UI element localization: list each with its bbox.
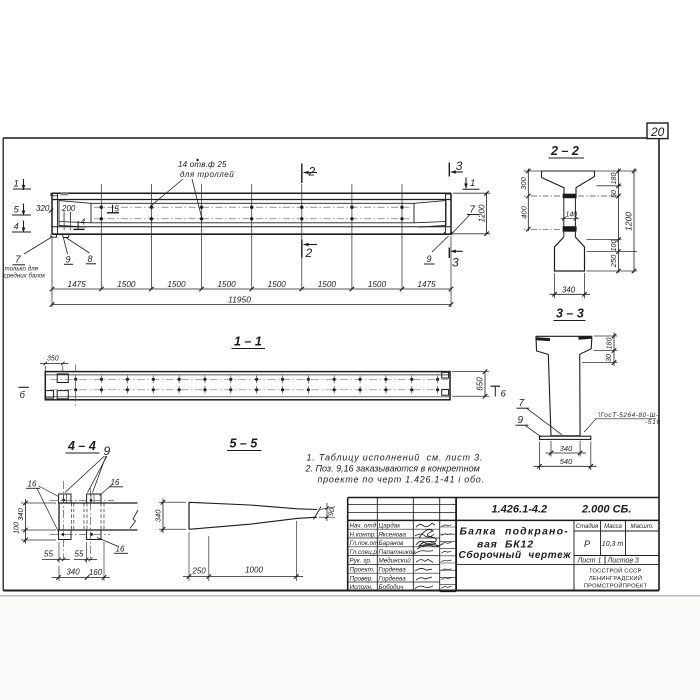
svg-text:10,3 т: 10,3 т <box>602 541 624 548</box>
svg-text:5 – 5: 5 – 5 <box>230 437 259 451</box>
svg-text:средних балок: средних балок <box>4 273 47 280</box>
svg-text:9: 9 <box>518 415 524 426</box>
svg-text:1200: 1200 <box>624 212 634 231</box>
svg-text:1500: 1500 <box>318 280 337 289</box>
svg-text:6: 6 <box>501 389 507 400</box>
svg-text:Лист 1: Лист 1 <box>577 558 602 565</box>
svg-text:3 – 3: 3 – 3 <box>556 307 584 321</box>
svg-text:Нач. отд: Нач. отд <box>350 522 377 530</box>
svg-text:ЛЕНИНГРАДСКИЙ: ЛЕНИНГРАДСКИЙ <box>589 574 642 582</box>
svg-text:55: 55 <box>75 550 84 559</box>
svg-text:Провер.: Провер. <box>350 575 373 582</box>
svg-text:400: 400 <box>520 205 529 218</box>
svg-text:Баранов: Баранов <box>379 540 405 547</box>
svg-text:б: б <box>20 390 26 401</box>
svg-text:340: 340 <box>16 507 25 520</box>
svg-text:30: 30 <box>606 354 613 362</box>
svg-text:1475: 1475 <box>417 280 436 289</box>
svg-text:вая БК12: вая БК12 <box>477 539 534 551</box>
svg-text:55: 55 <box>44 550 53 559</box>
svg-text:8: 8 <box>88 254 93 264</box>
svg-text:Гордеева: Гордеева <box>379 574 407 582</box>
svg-text:7: 7 <box>470 205 476 216</box>
svg-text:250: 250 <box>609 254 618 268</box>
svg-text:1 – 1: 1 – 1 <box>234 335 262 349</box>
svg-text:1500: 1500 <box>368 280 387 289</box>
svg-text:3: 3 <box>456 159 463 173</box>
svg-text:7: 7 <box>15 255 21 266</box>
svg-text:200: 200 <box>61 204 76 213</box>
svg-text:2 – 2: 2 – 2 <box>550 144 579 158</box>
svg-text:Листов 3: Листов 3 <box>607 558 639 565</box>
svg-text:Гл.пок.от: Гл.пок.от <box>350 540 379 547</box>
svg-text:16: 16 <box>111 478 120 487</box>
svg-text:100: 100 <box>611 240 618 252</box>
svg-text:˥ГосТ-5264-80-Ш-: ˥ГосТ-5264-80-Ш- <box>598 412 659 419</box>
svg-text:9: 9 <box>427 254 432 264</box>
svg-text:-510: -510 <box>645 419 661 426</box>
svg-text:1500: 1500 <box>217 280 236 289</box>
svg-text:Проект.: Проект. <box>350 567 375 574</box>
svg-text:4: 4 <box>81 216 86 226</box>
svg-text:540: 540 <box>560 457 573 466</box>
svg-text:Гл.спец.р: Гл.спец.р <box>350 549 378 556</box>
svg-text:1. Таблицу исполнений см. лис: 1. Таблицу исполнений см. лист 3. <box>307 453 484 463</box>
svg-text:Масса: Масса <box>604 524 622 530</box>
svg-text:Яксенова: Яксенова <box>378 531 407 538</box>
svg-text:Масшт.: Масшт. <box>631 524 654 530</box>
svg-text:1: 1 <box>470 178 475 189</box>
svg-text:140: 140 <box>566 212 578 219</box>
svg-text:Цардак: Цардак <box>379 522 402 530</box>
svg-text:для троллей: для троллей <box>180 170 234 179</box>
svg-text:1500: 1500 <box>117 280 136 289</box>
svg-text:50: 50 <box>611 190 618 198</box>
svg-text:1000: 1000 <box>245 566 263 575</box>
svg-text:350: 350 <box>47 356 59 363</box>
svg-text:2. Поз. 9,16 заказываются в ко: 2. Поз. 9,16 заказываются в конкретном <box>305 464 480 474</box>
svg-text:Палатников: Палатников <box>379 549 417 556</box>
svg-text:проекте по черт 1.426.1-41 і о: проекте по черт 1.426.1-41 і обо. <box>318 475 485 485</box>
svg-text:Стадия: Стадия <box>576 524 599 530</box>
svg-text:4 – 4: 4 – 4 <box>67 439 96 453</box>
svg-text:2.000 СБ.: 2.000 СБ. <box>581 504 631 516</box>
svg-text:Мединский: Мединский <box>379 557 412 565</box>
svg-text:340: 340 <box>154 509 163 522</box>
svg-text:Балка подкрано-: Балка подкрано- <box>460 526 569 538</box>
svg-text:Р: Р <box>584 539 590 549</box>
svg-text:160: 160 <box>89 568 103 577</box>
svg-text:180: 180 <box>611 173 618 185</box>
svg-text:9: 9 <box>66 255 71 265</box>
svg-text:1500: 1500 <box>167 280 186 289</box>
svg-text:5: 5 <box>114 204 119 214</box>
svg-text:20: 20 <box>650 125 665 139</box>
svg-text:5: 5 <box>14 205 20 216</box>
svg-text:100: 100 <box>14 522 21 534</box>
svg-text:340: 340 <box>562 286 576 295</box>
svg-text:340: 340 <box>560 444 573 453</box>
svg-text:250: 250 <box>191 567 206 576</box>
svg-text:7: 7 <box>519 398 525 409</box>
svg-text:ПРОМСТРОЙПРОЕКТ: ПРОМСТРОЙПРОЕКТ <box>584 582 648 590</box>
svg-text:Сборочный чертеж: Сборочный чертеж <box>459 549 572 561</box>
svg-text:Бободич: Бободич <box>379 583 405 591</box>
svg-text:650: 650 <box>476 377 485 391</box>
svg-text:1200: 1200 <box>478 204 487 222</box>
svg-text:340: 340 <box>66 568 80 577</box>
svg-text:300: 300 <box>519 176 528 189</box>
svg-text:16: 16 <box>28 480 37 489</box>
svg-text:Рук. гр.: Рук. гр. <box>350 558 372 565</box>
svg-text:1500: 1500 <box>268 280 287 289</box>
svg-text:2: 2 <box>305 246 313 260</box>
svg-text:11950: 11950 <box>228 295 251 305</box>
svg-text:2: 2 <box>308 165 316 179</box>
svg-text:Исполн.: Исполн. <box>350 584 373 591</box>
svg-text:только для: только для <box>5 266 39 273</box>
svg-text:1475: 1475 <box>68 280 87 289</box>
svg-text:Н.контр.: Н.контр. <box>350 531 377 538</box>
svg-text:1: 1 <box>14 179 19 190</box>
svg-text:180: 180 <box>607 338 614 350</box>
svg-text:320: 320 <box>36 204 50 213</box>
svg-text:4: 4 <box>14 222 19 233</box>
svg-text:14 отв.ф 25: 14 отв.ф 25 <box>178 160 227 169</box>
svg-text:3: 3 <box>452 256 459 270</box>
svg-text:Гордеева: Гордеева <box>379 566 407 574</box>
svg-text:9: 9 <box>104 444 111 458</box>
svg-text:1.426.1-4.2: 1.426.1-4.2 <box>492 504 548 516</box>
svg-text:ГОССТРОЙ СССР: ГОССТРОЙ СССР <box>589 567 641 575</box>
